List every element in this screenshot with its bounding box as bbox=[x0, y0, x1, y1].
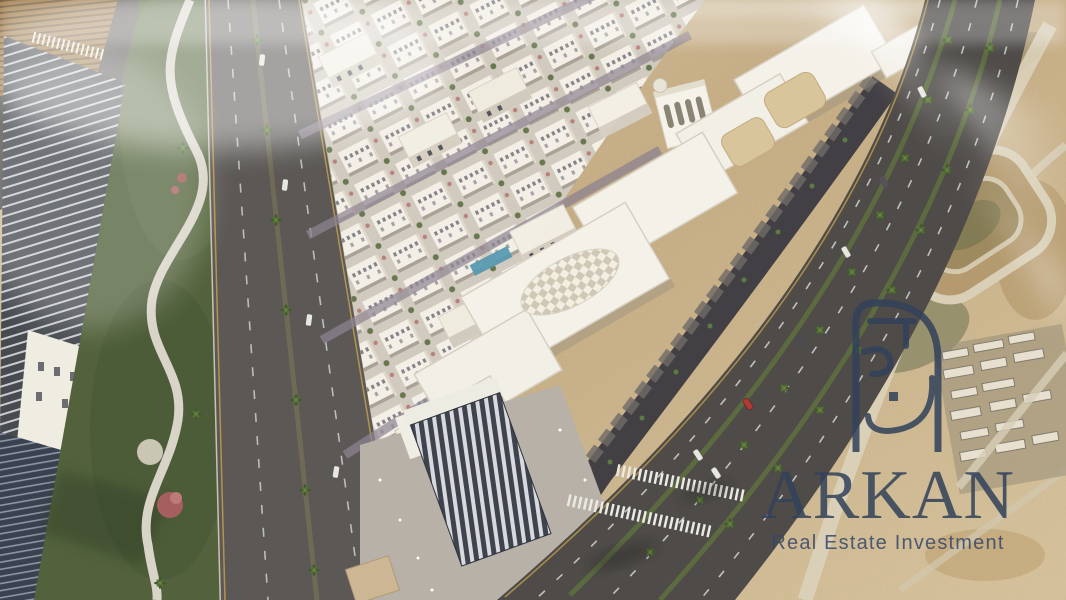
render-canvas: ARKAN Real Estate Investment bbox=[0, 0, 1066, 600]
brand-tagline: Real Estate Investment bbox=[771, 532, 1004, 554]
brand-wordmark: ARKAN bbox=[761, 457, 1015, 534]
aerial-development-render: ARKAN Real Estate Investment bbox=[0, 0, 1066, 600]
